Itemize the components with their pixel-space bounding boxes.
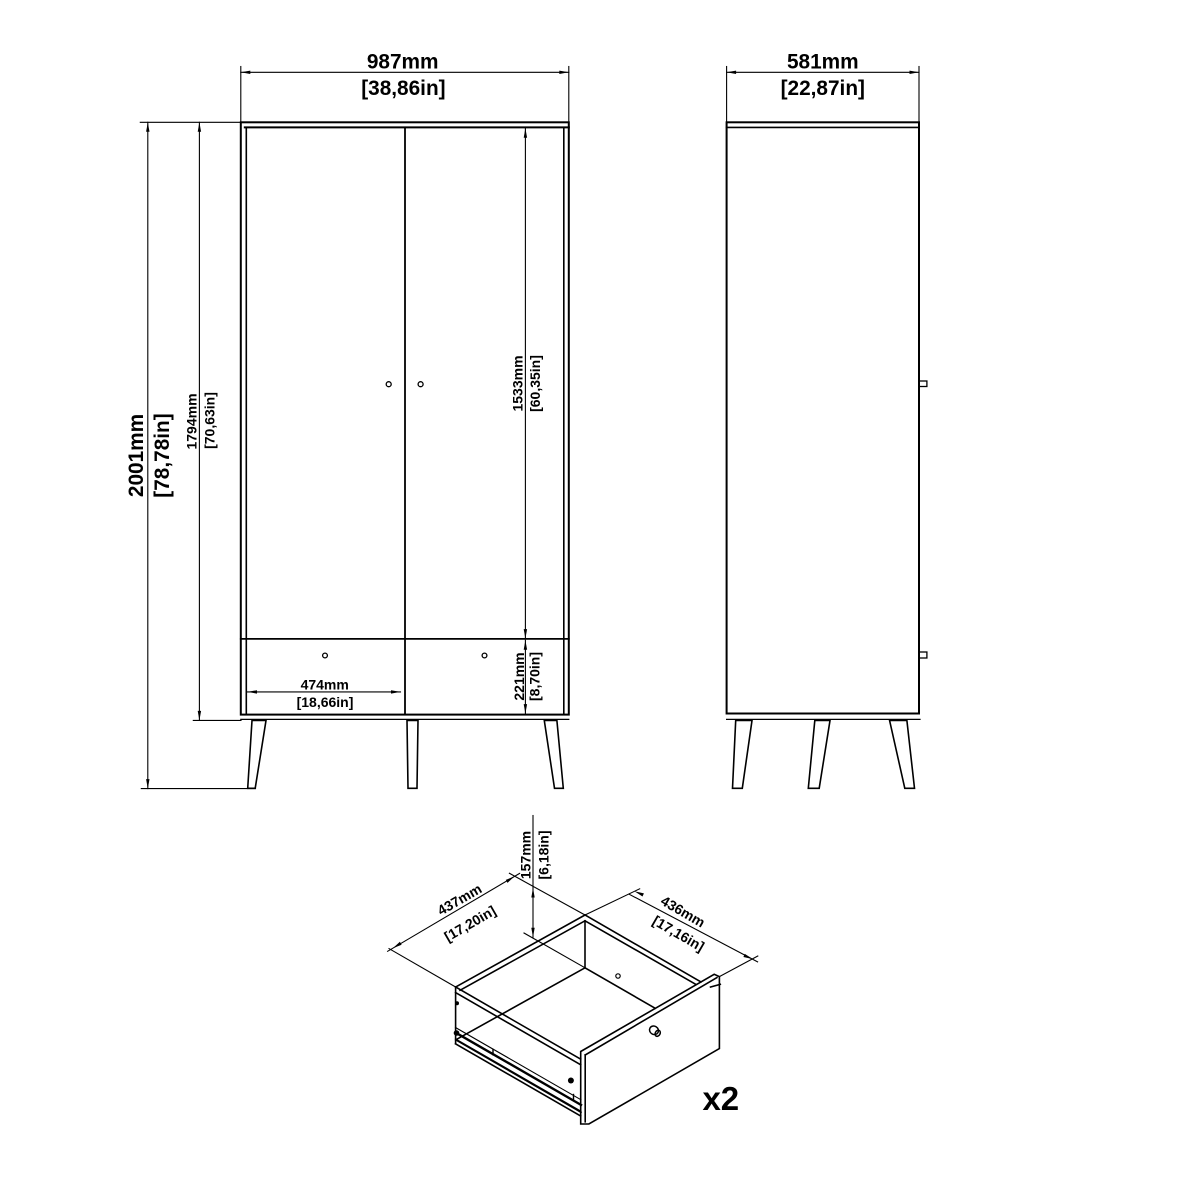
svg-text:[70,63in]: [70,63in] <box>201 392 217 449</box>
svg-text:[6,18in]: [6,18in] <box>535 830 551 879</box>
svg-text:[78,78in]: [78,78in] <box>151 413 174 497</box>
svg-text:474mm: 474mm <box>301 677 349 693</box>
svg-text:[22,87in]: [22,87in] <box>781 77 865 100</box>
svg-text:1533mm: 1533mm <box>509 355 525 411</box>
svg-text:987mm: 987mm <box>367 50 439 73</box>
svg-text:581mm: 581mm <box>787 50 859 73</box>
svg-text:[8,70in]: [8,70in] <box>526 652 542 701</box>
svg-text:221mm: 221mm <box>511 652 527 700</box>
svg-text:[38,86in]: [38,86in] <box>361 77 445 100</box>
svg-text:[18,66in]: [18,66in] <box>297 694 354 710</box>
svg-text:1794mm: 1794mm <box>183 393 199 449</box>
svg-text:157mm: 157mm <box>517 831 533 879</box>
svg-text:2001mm: 2001mm <box>125 414 148 497</box>
svg-text:[60,35in]: [60,35in] <box>527 355 543 412</box>
svg-text:x2: x2 <box>702 1080 739 1117</box>
